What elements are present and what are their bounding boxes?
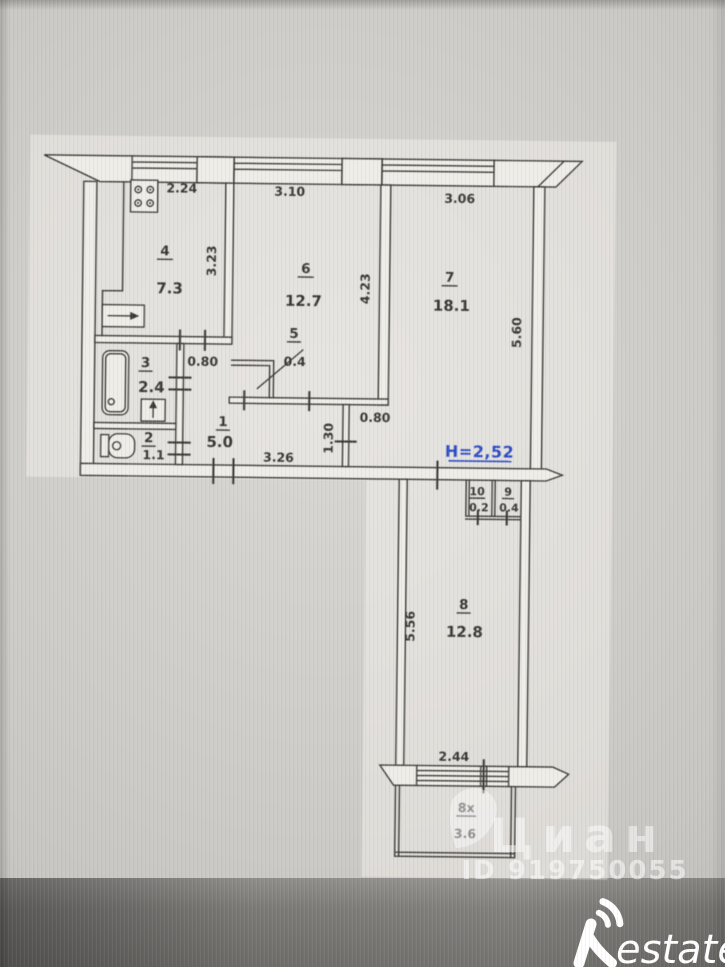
restate-wave-inner-icon (599, 913, 608, 925)
restate-wordmark: estate (616, 927, 725, 967)
restate-r-leg (590, 938, 612, 963)
restate-logo-svg: estate (0, 0, 725, 967)
restate-logo: estate (579, 902, 725, 967)
screen-photo: 2.24 3.10 3.06 3.23 4.23 5.60 0.80 0.80 … (0, 0, 725, 967)
